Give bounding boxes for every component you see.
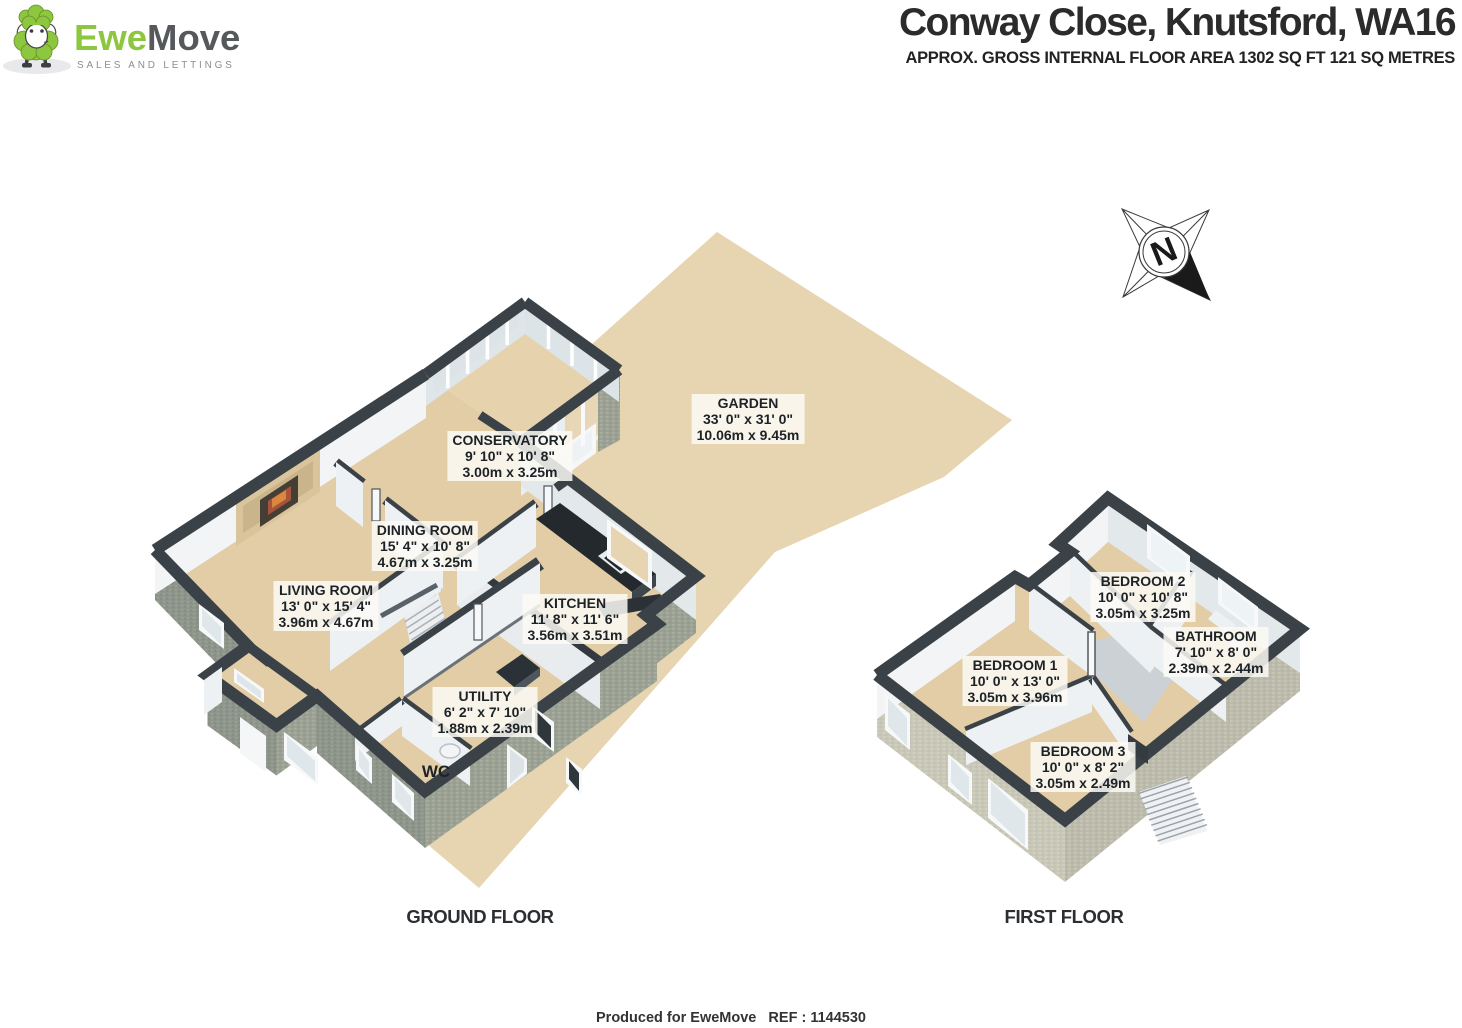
svg-text:SALES AND LETTINGS: SALES AND LETTINGS	[77, 60, 235, 71]
svg-text:EweMove: EweMove	[74, 17, 240, 58]
